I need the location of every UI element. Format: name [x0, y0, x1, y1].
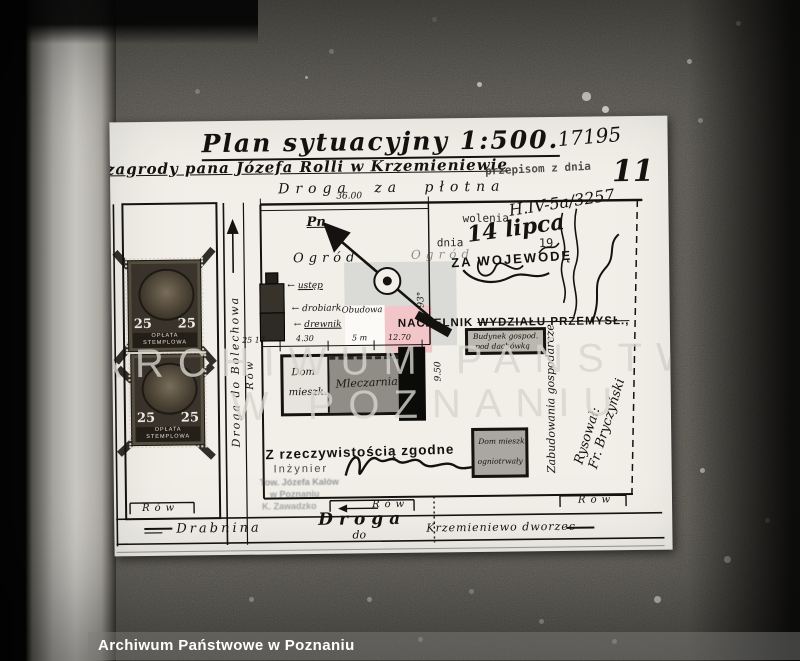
voivode-signature — [463, 269, 549, 282]
site-plan-document: Plan sytuacyjny 1:500. 17195 zagrody pan… — [109, 116, 672, 557]
stamp-medallion — [141, 362, 198, 415]
outbuilding-upper — [259, 283, 284, 314]
dwelling-building: Dom mieszk. ogniotrwały — [471, 427, 529, 478]
label-drobiark: drobiark — [302, 304, 341, 314]
stamp-values: 25 25 — [132, 410, 204, 426]
farm-building-label-1: Budynek gospod. — [473, 331, 538, 341]
engineer-stamp-line1: Tow. Józefa Kalów — [260, 477, 339, 488]
road-label-bottom: Droga — [318, 509, 406, 530]
north-label: Pn — [307, 215, 326, 230]
label-ustep: ustęp — [298, 281, 323, 291]
road-label-left-vertical: Droga do Bolechowa — [228, 297, 243, 447]
outbuilding-label-1: ← ustęp — [287, 281, 323, 291]
outbuilding-label-2: ← drobiark — [292, 304, 342, 315]
road-destination-east: Krzemieniewo dworzec — [426, 520, 576, 535]
road-direction-arrow-icon — [227, 219, 240, 273]
revenue-stamp-2: 25 25 OPŁATA STEMPLOWA — [130, 353, 205, 446]
ditch-label-vertical: Rów — [245, 354, 256, 394]
road-destination-west: Drabnina — [176, 521, 262, 537]
stamp-caption: OPŁATA STEMPLOWA — [133, 332, 197, 348]
engineer-stamp-line2: w Poznaniu — [270, 489, 320, 500]
dim-angle: 93° — [416, 292, 426, 308]
garden-label-left: Ogród — [293, 250, 360, 266]
caption-text: Archiwum Państwowe w Poznaniu — [98, 637, 355, 654]
outbuilding-label-3: ← drewnik — [294, 320, 342, 331]
stamp-value-left: 25 — [137, 411, 155, 426]
stamp-value-right: 25 — [181, 410, 199, 425]
farm-building: Budynek gospod. pod dachówką — [465, 327, 546, 355]
arrow-left-icon: ← — [294, 320, 302, 330]
structure-note: Obudowa — [342, 305, 383, 315]
house-label-1: Dom — [291, 367, 315, 378]
road-label-bottom-to: do — [352, 528, 366, 541]
stamp-medallion — [138, 268, 195, 321]
blacked-out-section — [398, 347, 426, 421]
ditch-label-bottom-left: Rów — [142, 503, 179, 514]
dim-gap: 5 m — [352, 333, 367, 342]
album-page-edge — [26, 0, 116, 661]
revenue-stamps: 25 25 OPŁATA STEMPLOWA 25 25 OPŁATA STEM… — [127, 259, 203, 450]
dwelling-label-1: Dom mieszk. — [478, 436, 527, 446]
photo-left-edge — [0, 0, 27, 661]
arrow-left-icon: ← — [287, 281, 295, 291]
ditch-label-bottom-right: Rów — [578, 494, 615, 505]
farm-building-label-2: pod dachówką — [475, 341, 530, 351]
archival-photograph: Plan sytuacyjny 1:500. 17195 zagrody pan… — [0, 0, 800, 661]
stamp-value-right: 25 — [178, 316, 196, 331]
page-number: 11 — [612, 154, 654, 190]
vertical-note: Zabudowania gospodarcze — [543, 298, 558, 498]
dim-depth: 9.50 — [433, 361, 443, 381]
stamp-values: 25 25 — [129, 316, 201, 332]
stamp-caption-line2: STEMPLOWA — [136, 433, 200, 441]
arrow-left-icon: ← — [292, 304, 300, 314]
top-corner-shadow — [0, 0, 258, 44]
dim-left-ticks: 25 17 — [242, 336, 265, 345]
road-label-top: Droga za płotna — [278, 179, 505, 198]
stamp-caption-line2: STEMPLOWA — [133, 339, 197, 347]
label-drewnik: drewnik — [304, 320, 341, 330]
dim-top-width: 36.00 — [336, 191, 362, 201]
dim-house: 4.30 — [296, 334, 314, 343]
dwelling-label-2: ogniotrwały — [477, 456, 522, 466]
department-stamp-word1: NACZELNIK — [398, 317, 474, 330]
stamp-caption: OPŁATA STEMPLOWA — [136, 426, 200, 442]
dim-yard: 12.70 — [388, 333, 411, 342]
engineer-label: Inżynier — [274, 463, 329, 476]
house-label-2: mieszk. — [289, 387, 327, 398]
caption-bar: Archiwum Państwowe w Poznaniu — [88, 632, 800, 660]
garden-label-right: Ogród — [411, 247, 474, 262]
stamp-value-left: 25 — [134, 317, 152, 332]
engineer-stamp-line3: K. Zawadzko — [262, 501, 317, 512]
revenue-stamp-1: 25 25 OPŁATA STEMPLOWA — [127, 259, 202, 352]
